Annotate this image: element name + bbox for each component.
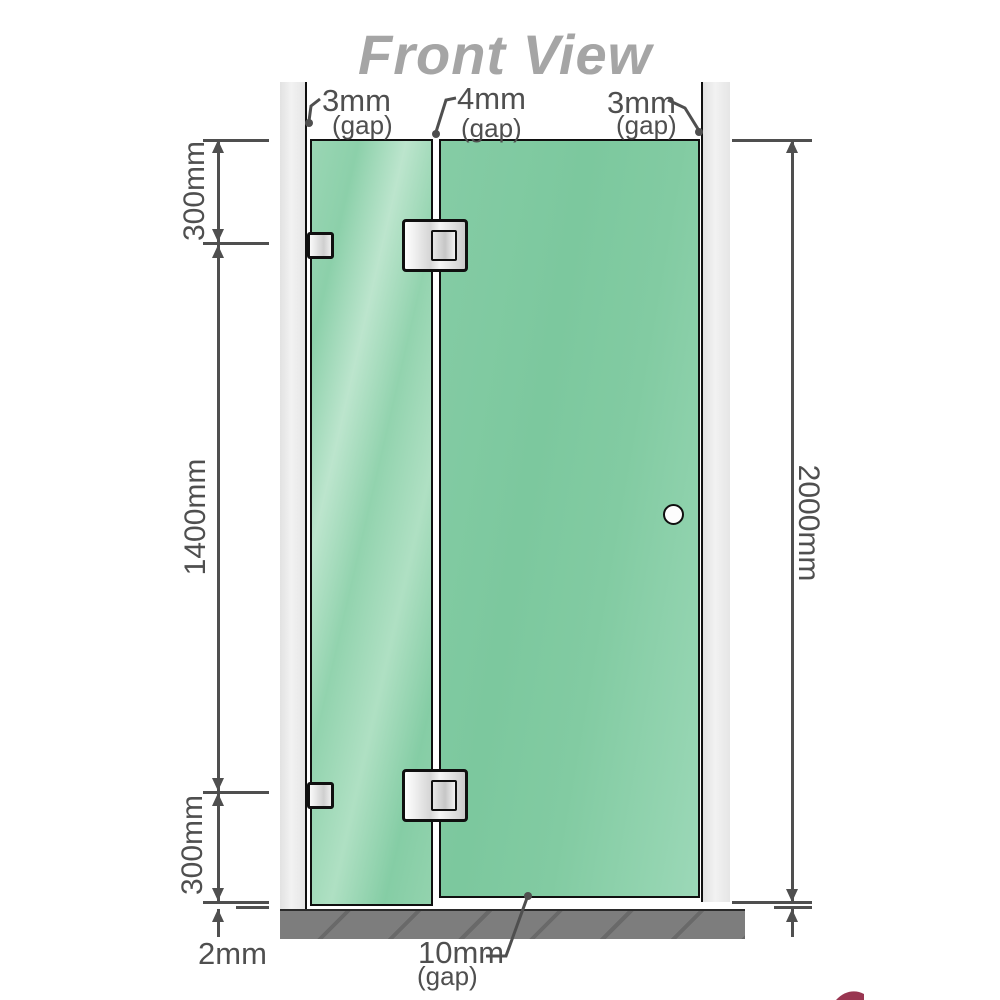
dim-label-300-top: 300mm xyxy=(178,141,212,241)
floor-base xyxy=(280,909,745,939)
arrow-up-icon xyxy=(212,245,224,258)
dim-label-2mm: 2mm xyxy=(198,936,267,972)
wall-bracket-bottom xyxy=(307,782,334,809)
gap-label-bottom-unit: (gap) xyxy=(417,961,478,992)
door-glass-panel xyxy=(439,139,700,898)
arrow-down-icon xyxy=(786,889,798,902)
gap-label-top-left-unit: (gap) xyxy=(332,110,393,141)
diagram-title: Front View xyxy=(358,22,652,87)
arrow-down-icon xyxy=(212,888,224,901)
floor-hatch-pattern xyxy=(280,911,745,939)
door-hinge-top xyxy=(402,219,468,272)
left-wall-channel xyxy=(280,82,307,909)
dim-line-300-bottom xyxy=(217,792,220,902)
dim-tick xyxy=(732,901,812,904)
corner-logo-swoosh xyxy=(836,991,864,1000)
wall-bracket-top xyxy=(307,232,334,259)
dim-tick xyxy=(236,906,269,909)
dim-label-1400: 1400mm xyxy=(179,459,213,576)
front-view-diagram: Front View 300mm 1400mm 300mm 2mm xyxy=(0,0,1000,1000)
dim-tick xyxy=(203,901,269,904)
arrow-up-icon xyxy=(212,909,224,922)
leader-line-top-middle xyxy=(436,98,456,132)
leader-line-top-left xyxy=(309,99,320,121)
gap-label-top-right-unit: (gap) xyxy=(616,110,677,141)
hinge-plate-tab xyxy=(431,780,457,811)
hinge-plate-tab xyxy=(431,230,457,261)
dim-tick xyxy=(732,139,812,142)
arrow-up-icon xyxy=(786,140,798,153)
arrow-up-icon xyxy=(786,909,798,922)
arrow-up-icon xyxy=(212,793,224,806)
arrow-up-icon xyxy=(212,140,224,153)
arrow-down-icon xyxy=(212,229,224,242)
gap-label-top-middle-value: 4mm xyxy=(457,81,526,117)
dim-line-1400 xyxy=(217,243,220,792)
gap-label-top-middle-unit: (gap) xyxy=(461,113,522,144)
arrow-down-icon xyxy=(212,778,224,791)
door-handle-knob xyxy=(663,504,684,525)
leader-dot xyxy=(432,130,440,138)
dim-label-2000: 2000mm xyxy=(791,465,825,582)
dim-line-300-top xyxy=(217,141,220,243)
door-hinge-bottom xyxy=(402,769,468,822)
dim-label-300-bottom: 300mm xyxy=(176,795,210,895)
right-wall-channel xyxy=(701,82,730,902)
